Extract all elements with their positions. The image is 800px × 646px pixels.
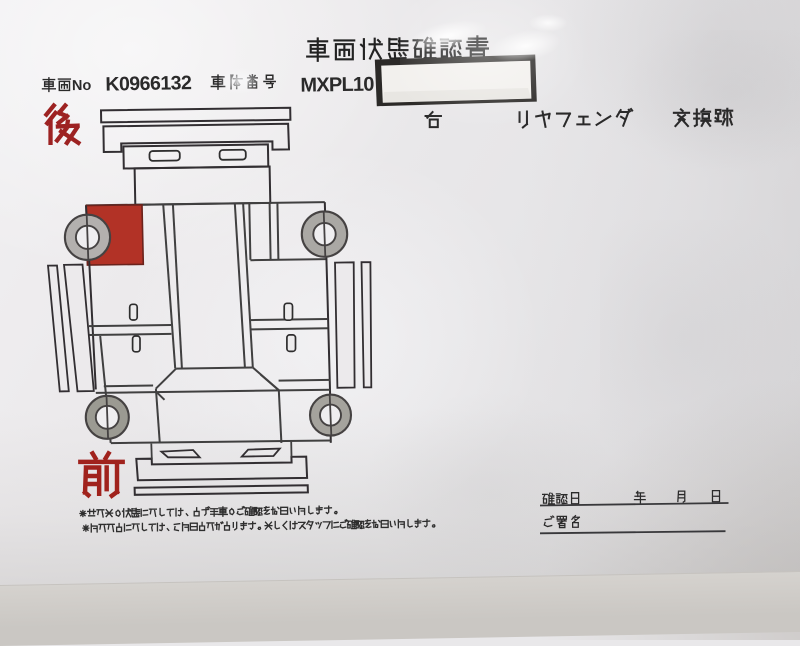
svg-text:No: No — [72, 78, 92, 94]
svg-text:K0966132: K0966132 — [105, 72, 192, 96]
svg-text:MXPL10: MXPL10 — [300, 74, 374, 97]
